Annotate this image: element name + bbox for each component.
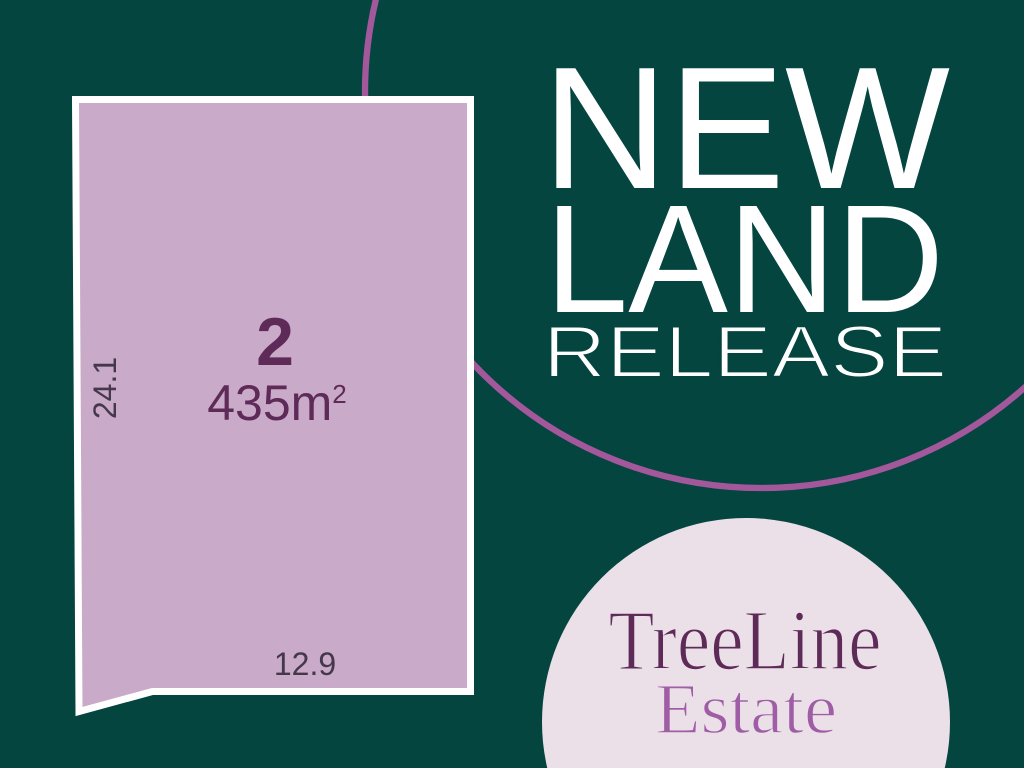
svg-text:435m2: 435m2: [207, 375, 347, 431]
svg-text:12.9: 12.9: [274, 646, 336, 682]
svg-text:24.1: 24.1: [87, 357, 123, 419]
svg-text:RELEASE: RELEASE: [543, 312, 947, 393]
svg-text:Estate: Estate: [655, 669, 837, 749]
svg-text:2: 2: [256, 304, 294, 380]
